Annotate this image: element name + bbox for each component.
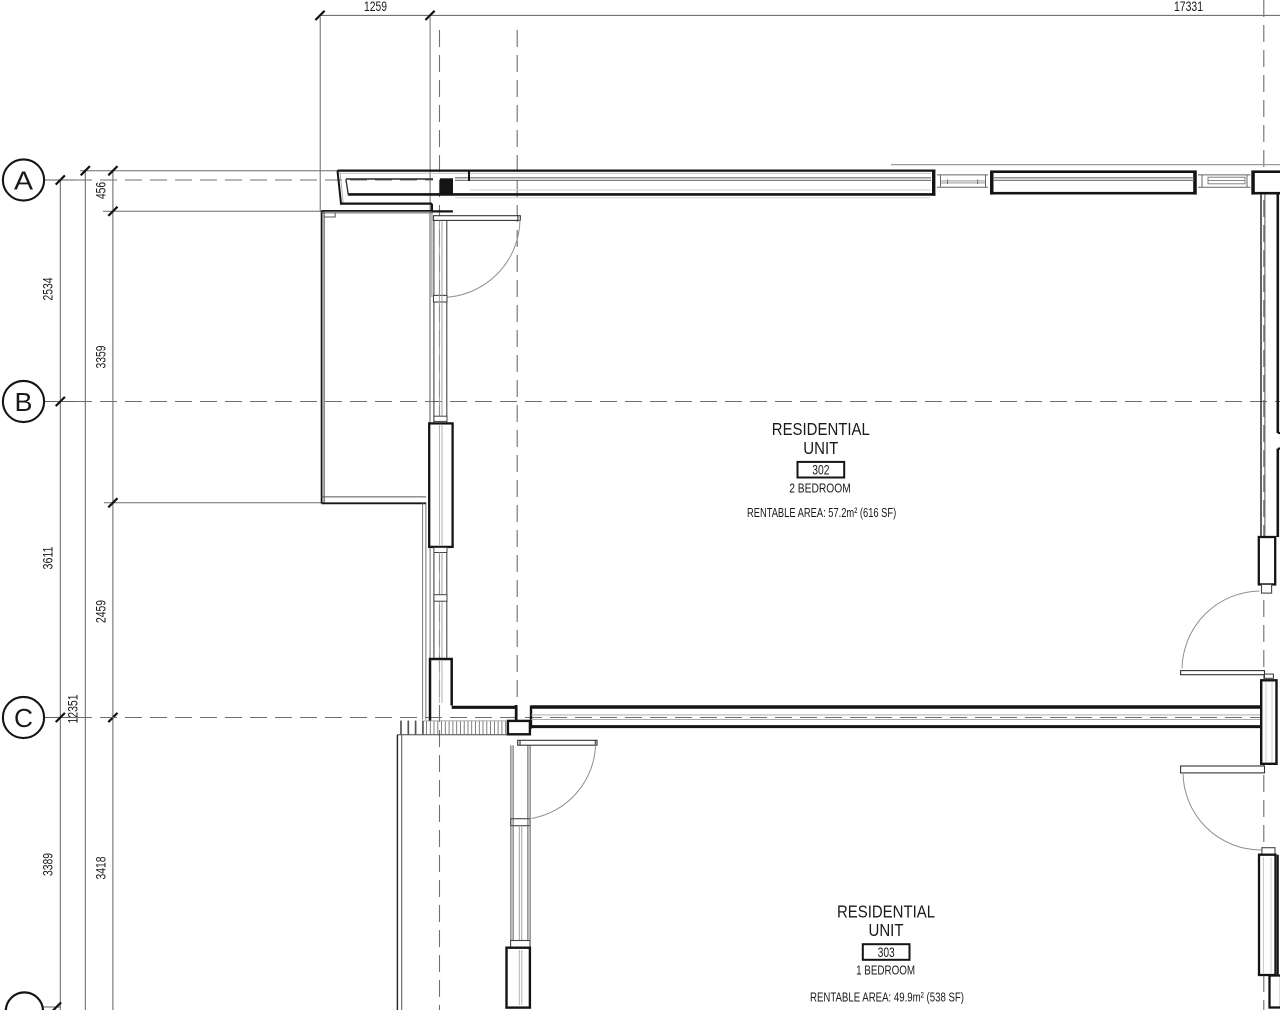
svg-text:RESIDENTIAL: RESIDENTIAL: [772, 419, 870, 439]
svg-text:3359: 3359: [94, 346, 109, 369]
svg-text:2459: 2459: [94, 600, 109, 623]
svg-text:1259: 1259: [364, 0, 387, 14]
svg-text:B: B: [15, 387, 33, 417]
svg-text:17331: 17331: [1174, 0, 1203, 14]
svg-text:3611: 3611: [41, 547, 56, 570]
svg-text:A: A: [14, 165, 34, 195]
svg-text:2534: 2534: [41, 277, 56, 300]
svg-text:3389: 3389: [41, 853, 56, 876]
svg-text:303: 303: [878, 945, 895, 960]
svg-text:2 BEDROOM: 2 BEDROOM: [789, 480, 851, 495]
svg-text:302: 302: [812, 463, 829, 478]
svg-text:12351: 12351: [66, 695, 81, 724]
svg-text:UNIT: UNIT: [803, 438, 838, 458]
svg-text:RENTABLE AREA: 57.2m² (616 SF): RENTABLE AREA: 57.2m² (616 SF): [747, 505, 896, 520]
svg-text:1 BEDROOM: 1 BEDROOM: [856, 963, 915, 978]
svg-text:UNIT: UNIT: [869, 920, 904, 940]
svg-text:RESIDENTIAL: RESIDENTIAL: [837, 902, 935, 922]
svg-text:C: C: [14, 703, 33, 733]
svg-text:3418: 3418: [94, 857, 109, 880]
svg-text:RENTABLE AREA: 49.9m² (538 SF): RENTABLE AREA: 49.9m² (538 SF): [810, 990, 964, 1005]
svg-text:456: 456: [94, 182, 109, 199]
